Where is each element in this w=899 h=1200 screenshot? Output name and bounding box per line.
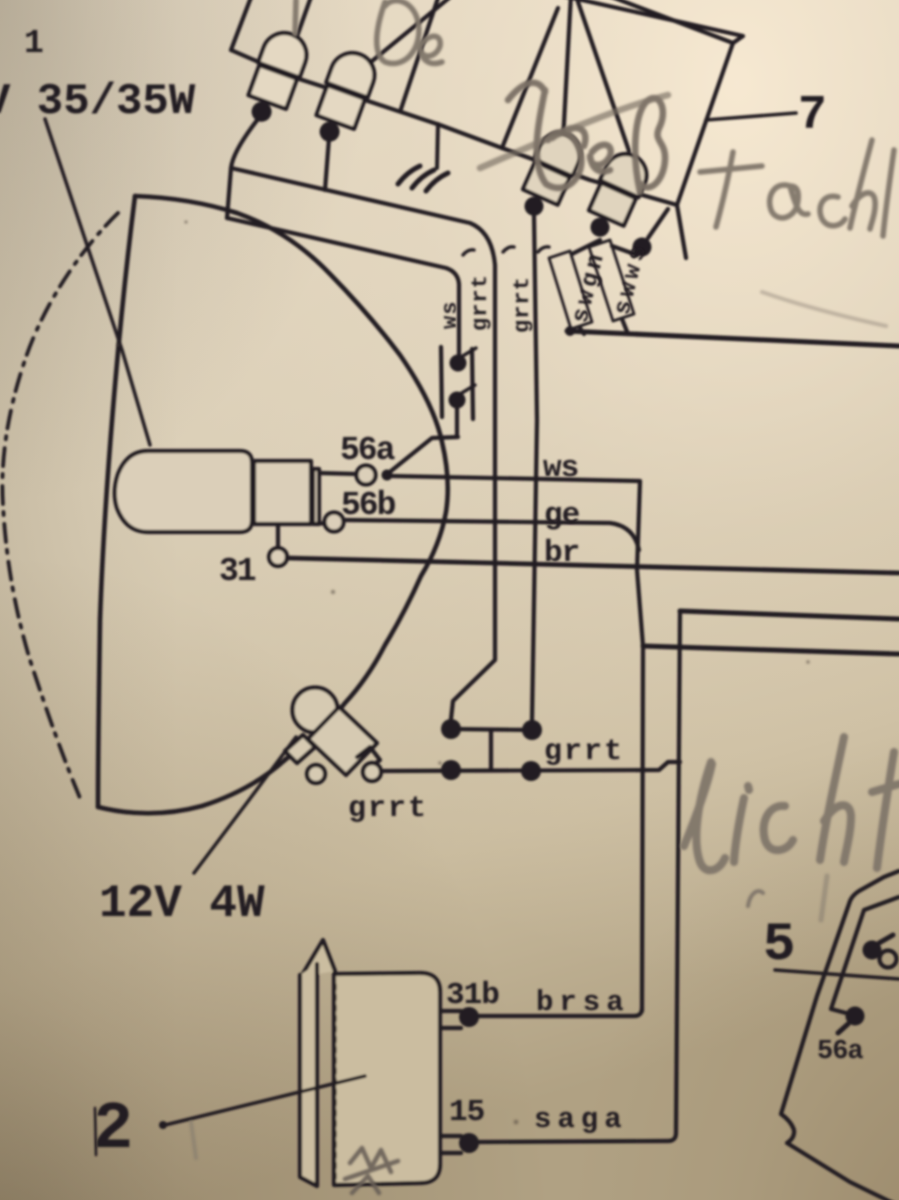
svg-text:V 35/35W: V 35/35W (0, 77, 196, 127)
svg-text:12V 4W: 12V 4W (99, 878, 265, 930)
svg-text:brsa: brsa (536, 986, 630, 1019)
svg-text:grrt: grrt (510, 276, 535, 333)
svg-text:saga: saga (534, 1103, 628, 1136)
svg-text:ws: ws (438, 301, 463, 329)
svg-text:grrt: grrt (544, 735, 624, 769)
svg-text:31: 31 (219, 553, 256, 590)
svg-text:grrt: grrt (348, 792, 428, 826)
svg-text:7: 7 (798, 89, 827, 143)
svg-text:2: 2 (93, 1092, 133, 1168)
svg-text:5: 5 (763, 915, 795, 976)
svg-text:31b: 31b (446, 978, 499, 1013)
svg-text:grrt: grrt (468, 274, 493, 331)
svg-text:56a: 56a (340, 432, 395, 469)
svg-text:56a: 56a (817, 1037, 863, 1067)
svg-text:ge: ge (544, 498, 580, 533)
svg-text:br: br (544, 536, 579, 571)
svg-text:ws: ws (543, 451, 578, 486)
svg-text:56b: 56b (341, 487, 396, 524)
svg-text:15: 15 (449, 1095, 484, 1130)
svg-text:1: 1 (24, 25, 44, 62)
